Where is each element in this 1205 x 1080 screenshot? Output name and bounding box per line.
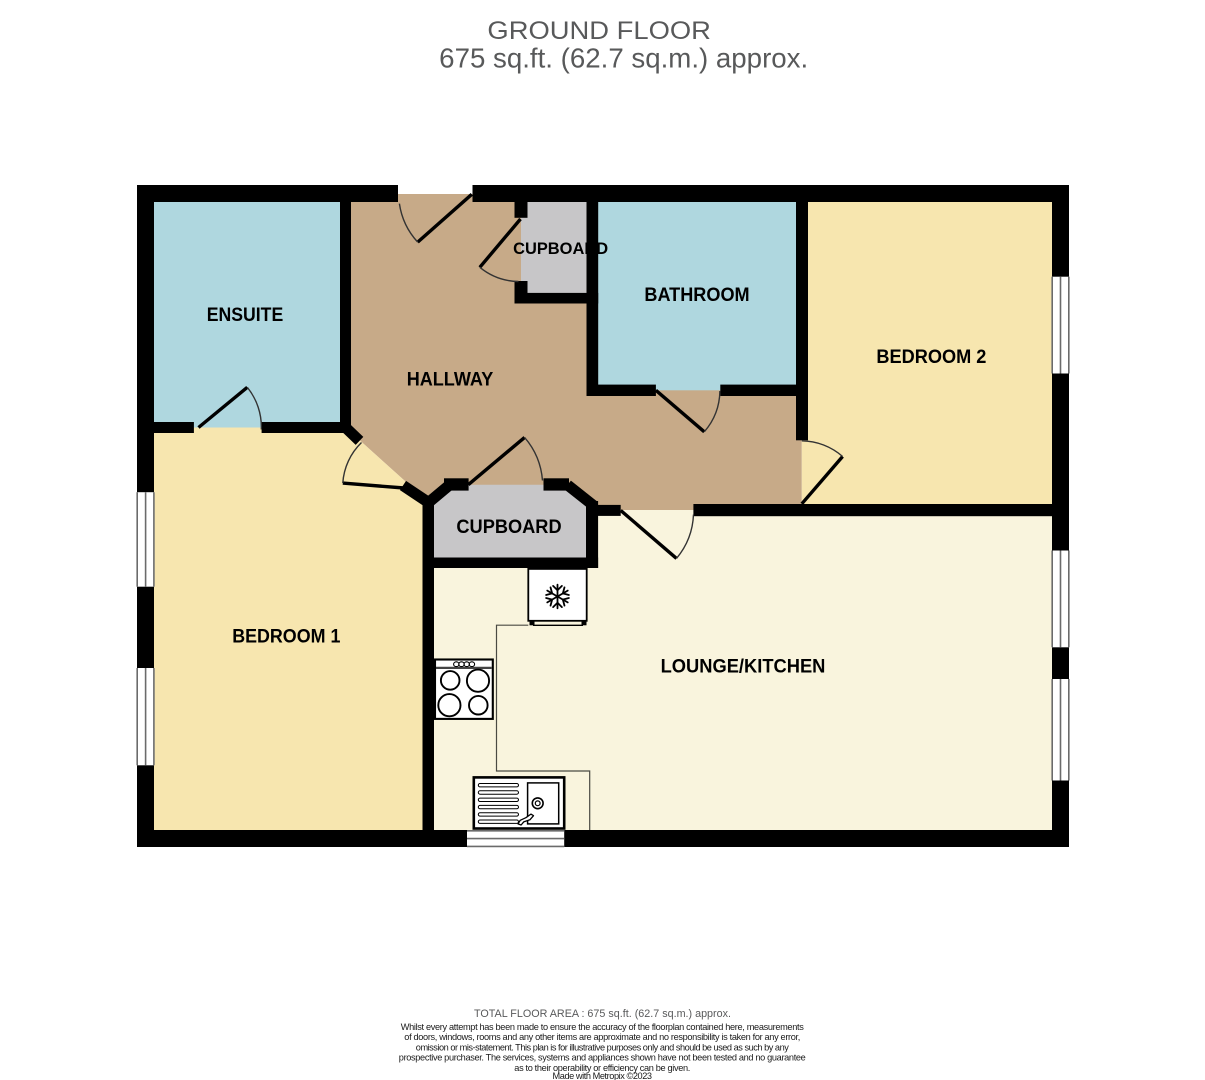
svg-text:of doors, windows, rooms and a: of doors, windows, rooms and any other i…	[404, 1032, 800, 1042]
svg-text:675 sq.ft. (62.7 sq.m.) approx: 675 sq.ft. (62.7 sq.m.) approx.	[439, 42, 808, 73]
svg-text:BEDROOM 2: BEDROOM 2	[876, 347, 986, 368]
svg-text:BATHROOM: BATHROOM	[644, 285, 749, 306]
svg-text:omission or mis-statement. Thi: omission or mis-statement. This plan is …	[416, 1042, 789, 1052]
svg-text:CUPBOARD: CUPBOARD	[513, 239, 608, 258]
svg-text:LOUNGE/KITCHEN: LOUNGE/KITCHEN	[661, 656, 826, 677]
svg-text:GROUND FLOOR: GROUND FLOOR	[487, 17, 711, 45]
svg-text:CUPBOARD: CUPBOARD	[456, 517, 561, 538]
svg-text:Whilst every attempt has been: Whilst every attempt has been made to en…	[401, 1022, 804, 1032]
svg-text:prospective purchaser. The ser: prospective purchaser. The services, sys…	[399, 1053, 806, 1063]
svg-text:ENSUITE: ENSUITE	[207, 305, 284, 326]
svg-text:HALLWAY: HALLWAY	[407, 370, 494, 391]
svg-text:Made with Metropix ©2023: Made with Metropix ©2023	[553, 1071, 653, 1080]
svg-text:BEDROOM 1: BEDROOM 1	[232, 626, 341, 647]
svg-text:TOTAL FLOOR AREA : 675 sq.ft.: TOTAL FLOOR AREA : 675 sq.ft. (62.7 sq.m…	[474, 1008, 731, 1020]
